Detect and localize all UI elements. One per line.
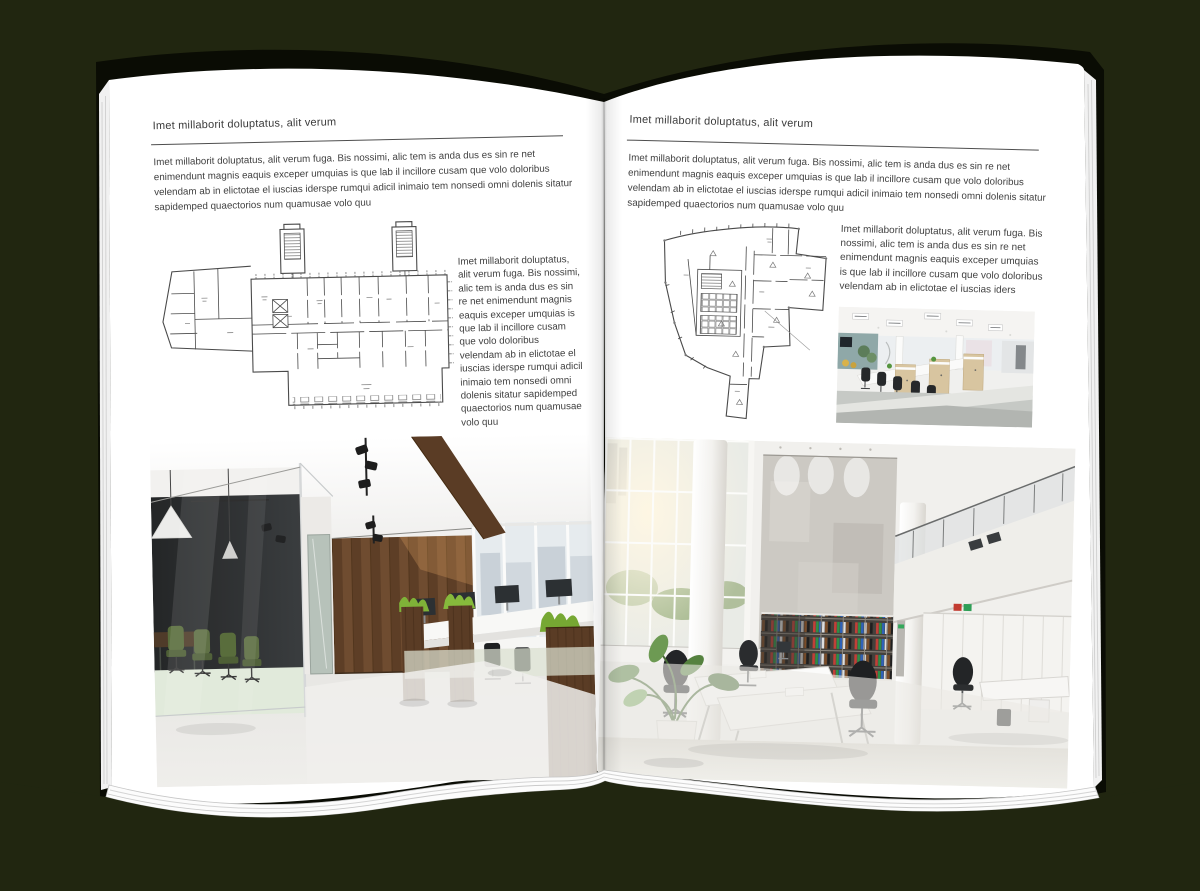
left-page: Imet millaborit doluptatus, alit verum I…: [118, 84, 615, 794]
left-side-text: Imet millaborit doluptatus, alit verum f…: [458, 253, 586, 430]
plan-right-diagonal: [764, 311, 811, 350]
plan-right-outline: [660, 224, 827, 420]
floor-plan-left: [155, 218, 455, 424]
plan-left-partitions: [169, 264, 449, 374]
office-photo-dark-loft: [150, 433, 597, 788]
first-aid-sign-icon: [954, 604, 962, 611]
right-intro-paragraph: Imet millaborit doluptatus, alit verum f…: [627, 152, 1048, 222]
left-intro-paragraph: Imet millaborit doluptatus, alit verum f…: [153, 147, 574, 216]
office-photo-bright-hall: [597, 437, 1075, 788]
exit-sign-icon: [964, 604, 972, 611]
plan-left-room-labels: [184, 293, 441, 393]
left-header-rule: [151, 135, 563, 145]
right-header-rule: [627, 140, 1039, 151]
right-page-header: Imet millaborit doluptatus, alit verum: [629, 114, 1049, 136]
plan-left-stairs-1: [284, 233, 301, 259]
left-page-header: Imet millaborit doluptatus, alit verum: [153, 111, 573, 132]
backdrop: Imet millaborit doluptatus, alit verum I…: [0, 0, 1200, 891]
plan-right-wc-cells-2: [700, 315, 736, 334]
right-page: Imet millaborit doluptatus, alit verum I…: [587, 95, 1104, 807]
floor-plan-right: [636, 214, 837, 431]
plan-left-elevators: [273, 299, 289, 327]
plan-left-window-ticks-right: [447, 275, 454, 368]
office-photo-cubicles: [836, 307, 1035, 428]
photo3-window-wall: [600, 437, 753, 665]
plan-right-stairs: [701, 273, 721, 288]
right-side-text: Imet millaborit doluptatus, alit verum f…: [839, 223, 1045, 299]
photo1-glass-door: [301, 496, 335, 674]
plan-left-stairs-2: [396, 231, 413, 257]
photo3-monitor: [776, 641, 790, 652]
plan-right-wc-cells: [701, 293, 737, 312]
